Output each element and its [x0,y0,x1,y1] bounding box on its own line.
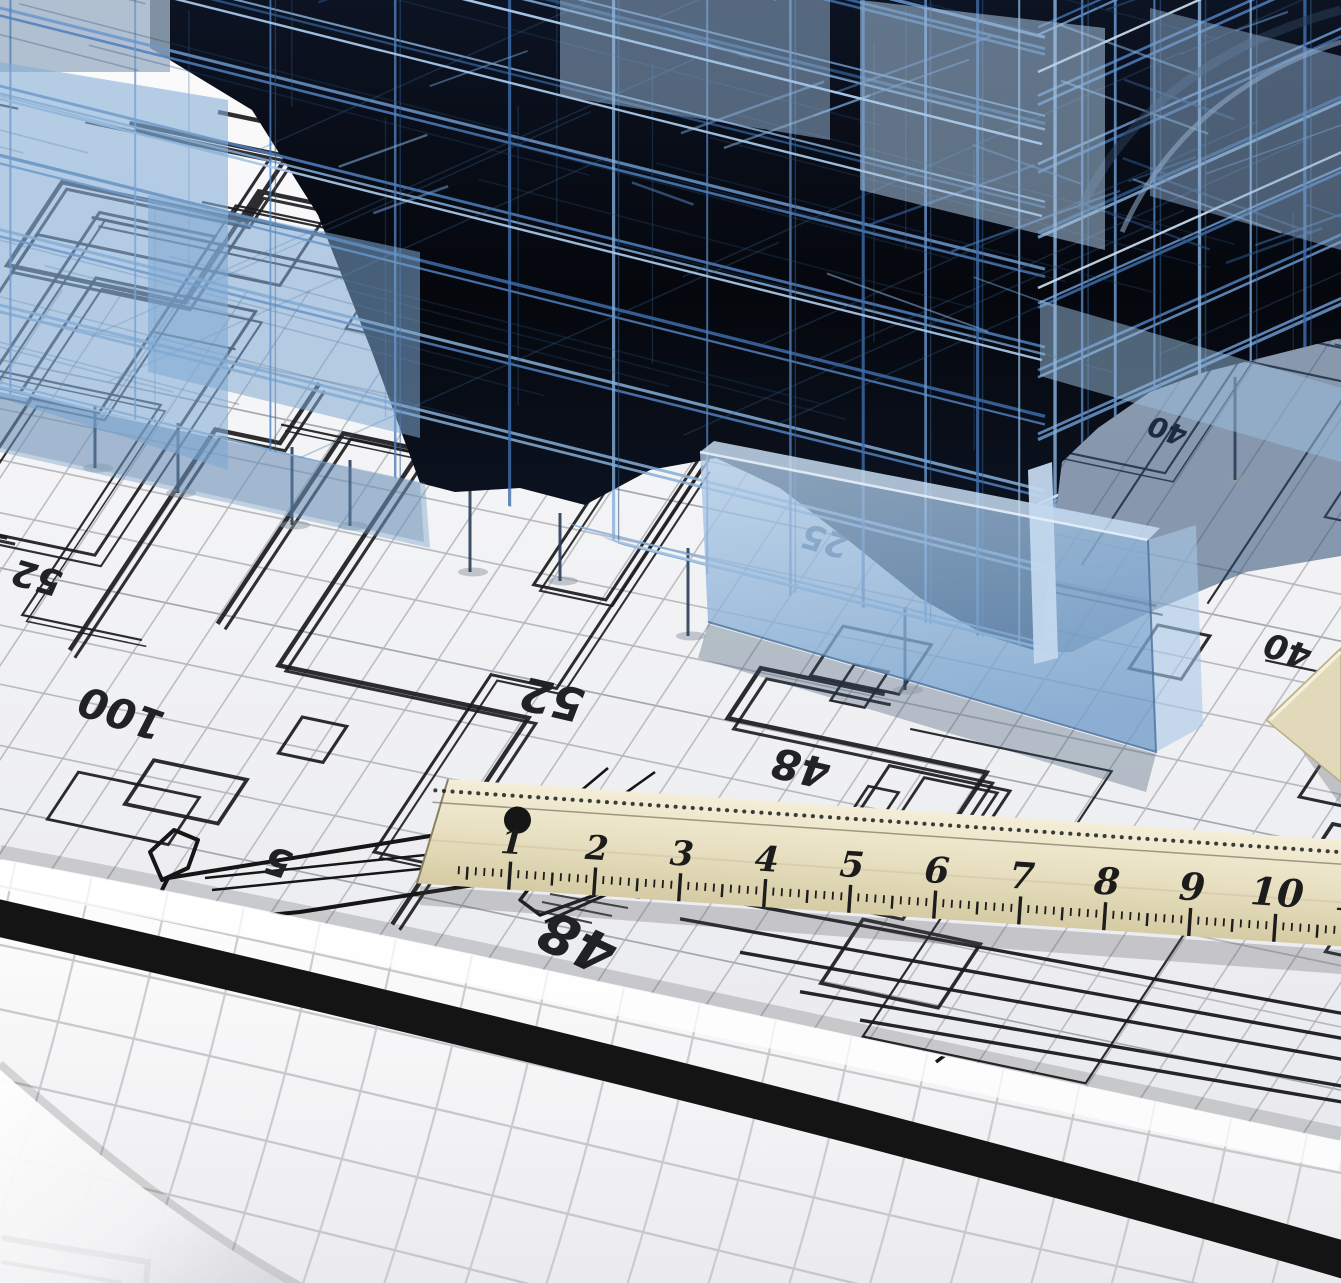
blueprint-scene: Translucent blue 3D wireframe building m… [0,0,1341,1283]
ruler-number: 7 [1008,854,1036,899]
ruler-minor-tick [663,880,664,888]
ruler-minor-tick [535,871,536,879]
ruler-minor-tick [986,902,987,910]
ruler-number: 6 [923,849,951,893]
ruler-minor-tick [824,891,825,899]
ruler-major-tick [1189,908,1191,936]
ruler-minor-tick [1224,918,1225,926]
ruler-minor-tick [1028,905,1029,913]
ruler-minor-tick [1266,921,1267,929]
ruler-minor-tick [901,896,902,904]
ruler-minor-tick [612,877,613,885]
ruler-minor-tick [943,899,944,907]
ruler-minor-tick [1037,906,1038,914]
ruler-minor-tick [603,876,604,884]
ruler-major-tick [1104,902,1106,930]
ruler-minor-tick [578,874,579,882]
ruler-minor-tick [705,883,706,891]
ruler-number: 5 [838,844,865,887]
ruler-minor-tick [1258,921,1259,929]
ruler-minor-tick [1300,924,1301,932]
ruler-minor-tick [714,884,715,892]
ruler-minor-tick [467,867,468,880]
ruler-number: 1 [499,822,525,862]
ruler-minor-tick [909,897,910,905]
ruler-number: 4 [753,838,780,881]
ruler-minor-tick [493,868,494,876]
ruler-major-tick [764,879,766,907]
ruler-minor-tick [527,871,528,879]
ruler-minor-tick [484,868,485,876]
ruler-minor-tick [833,892,834,900]
ruler-minor-tick [1071,908,1072,916]
ruler-minor-tick [1317,925,1318,938]
ruler-minor-tick [722,884,723,897]
ruler-minor-tick [773,888,774,896]
ruler-minor-tick [1054,907,1055,915]
ruler-minor-tick [620,877,621,885]
ruler-minor-tick [1164,914,1165,922]
ruler-minor-tick [629,878,630,886]
pin-shadow [458,568,488,577]
ruler-minor-tick [1096,910,1097,918]
ruler-minor-tick [807,890,808,903]
ruler-number: 2 [583,827,610,869]
ruler-number: 8 [1092,858,1122,904]
ruler-minor-tick [748,886,749,894]
ruler-minor-tick [501,869,502,877]
ruler-minor-tick [960,900,961,908]
ruler-minor-tick [476,867,477,875]
ruler-minor-tick [926,898,927,906]
ruler-minor-tick [561,873,562,881]
ruler-minor-tick [731,885,732,893]
pin-shadow [548,577,578,586]
ruler-minor-tick [969,901,970,909]
ruler-minor-tick [952,900,953,908]
blueprint-scene-svg: Translucent blue 3D wireframe building m… [0,0,1341,1283]
ruler-minor-tick [518,870,519,878]
ruler-minor-tick [1309,924,1310,932]
ruler-minor-tick [1011,904,1012,912]
ruler-minor-tick [841,892,842,900]
ruler-minor-tick [1326,925,1327,933]
ruler-minor-tick [586,875,587,883]
glass-slab-side [1148,525,1203,752]
ruler-minor-tick [1232,919,1233,932]
ruler-minor-tick [1113,911,1114,919]
ruler-major-tick [679,873,681,901]
ruler-minor-tick [1249,920,1250,928]
ruler-minor-tick [739,885,740,893]
pin-shadow [893,686,923,695]
ruler-minor-tick [1215,918,1216,926]
pin-shadow [676,632,706,641]
ruler-minor-tick [790,889,791,897]
ruler-minor-tick [688,882,689,890]
ruler-minor-tick [1173,915,1174,923]
ruler-minor-tick [459,866,460,874]
pin-shadow [1223,476,1253,485]
ruler-minor-tick [1003,903,1004,911]
ruler-minor-tick [1207,917,1208,925]
ruler-minor-tick [884,895,885,903]
ruler-minor-tick [552,873,553,886]
ruler-major-tick [1274,914,1276,942]
ruler-minor-tick [867,894,868,902]
ruler-minor-tick [697,882,698,890]
ruler-minor-tick [654,880,655,888]
ruler-minor-tick [816,891,817,899]
ruler-major-tick [849,885,851,913]
ruler-number: 9 [1177,864,1206,910]
ruler-number: 3 [669,834,695,876]
ruler-major-tick [509,862,511,890]
ruler-minor-tick [1241,919,1242,927]
ruler-minor-tick [782,888,783,896]
ruler-minor-tick [671,881,672,889]
ruler-minor-tick [994,903,995,911]
ruler-minor-tick [646,879,647,887]
ruler-minor-tick [977,902,978,915]
ruler-minor-tick [1156,914,1157,922]
ruler-major-tick [934,891,936,919]
ruler-minor-tick [1130,912,1131,920]
ruler-minor-tick [799,889,800,897]
ruler-minor-tick [1045,906,1046,914]
ruler-major-tick [1019,896,1021,924]
ruler-major-tick [594,867,596,895]
ruler-minor-tick [875,895,876,903]
ruler-minor-tick [858,893,859,901]
pin-shadow [280,521,310,530]
ruler-minor-tick [1292,923,1293,931]
ruler-minor-tick [544,872,545,880]
ruler-minor-tick [892,896,893,909]
ruler-number: 10 [1249,869,1306,918]
ruler-minor-tick [1122,911,1123,919]
ruler-minor-tick [1334,926,1335,934]
ruler-minor-tick [637,878,638,891]
ruler-minor-tick [1062,907,1063,920]
ruler-minor-tick [1139,913,1140,921]
ruler-minor-tick [918,897,919,905]
ruler-minor-tick [1283,922,1284,930]
ruler-minor-tick [1147,913,1148,926]
ruler-minor-tick [1181,915,1182,923]
ruler-minor-tick [756,886,757,894]
ruler-minor-tick [1088,909,1089,917]
ruler-minor-tick [569,874,570,882]
ruler-minor-tick [1079,908,1080,916]
ruler-minor-tick [1198,917,1199,925]
